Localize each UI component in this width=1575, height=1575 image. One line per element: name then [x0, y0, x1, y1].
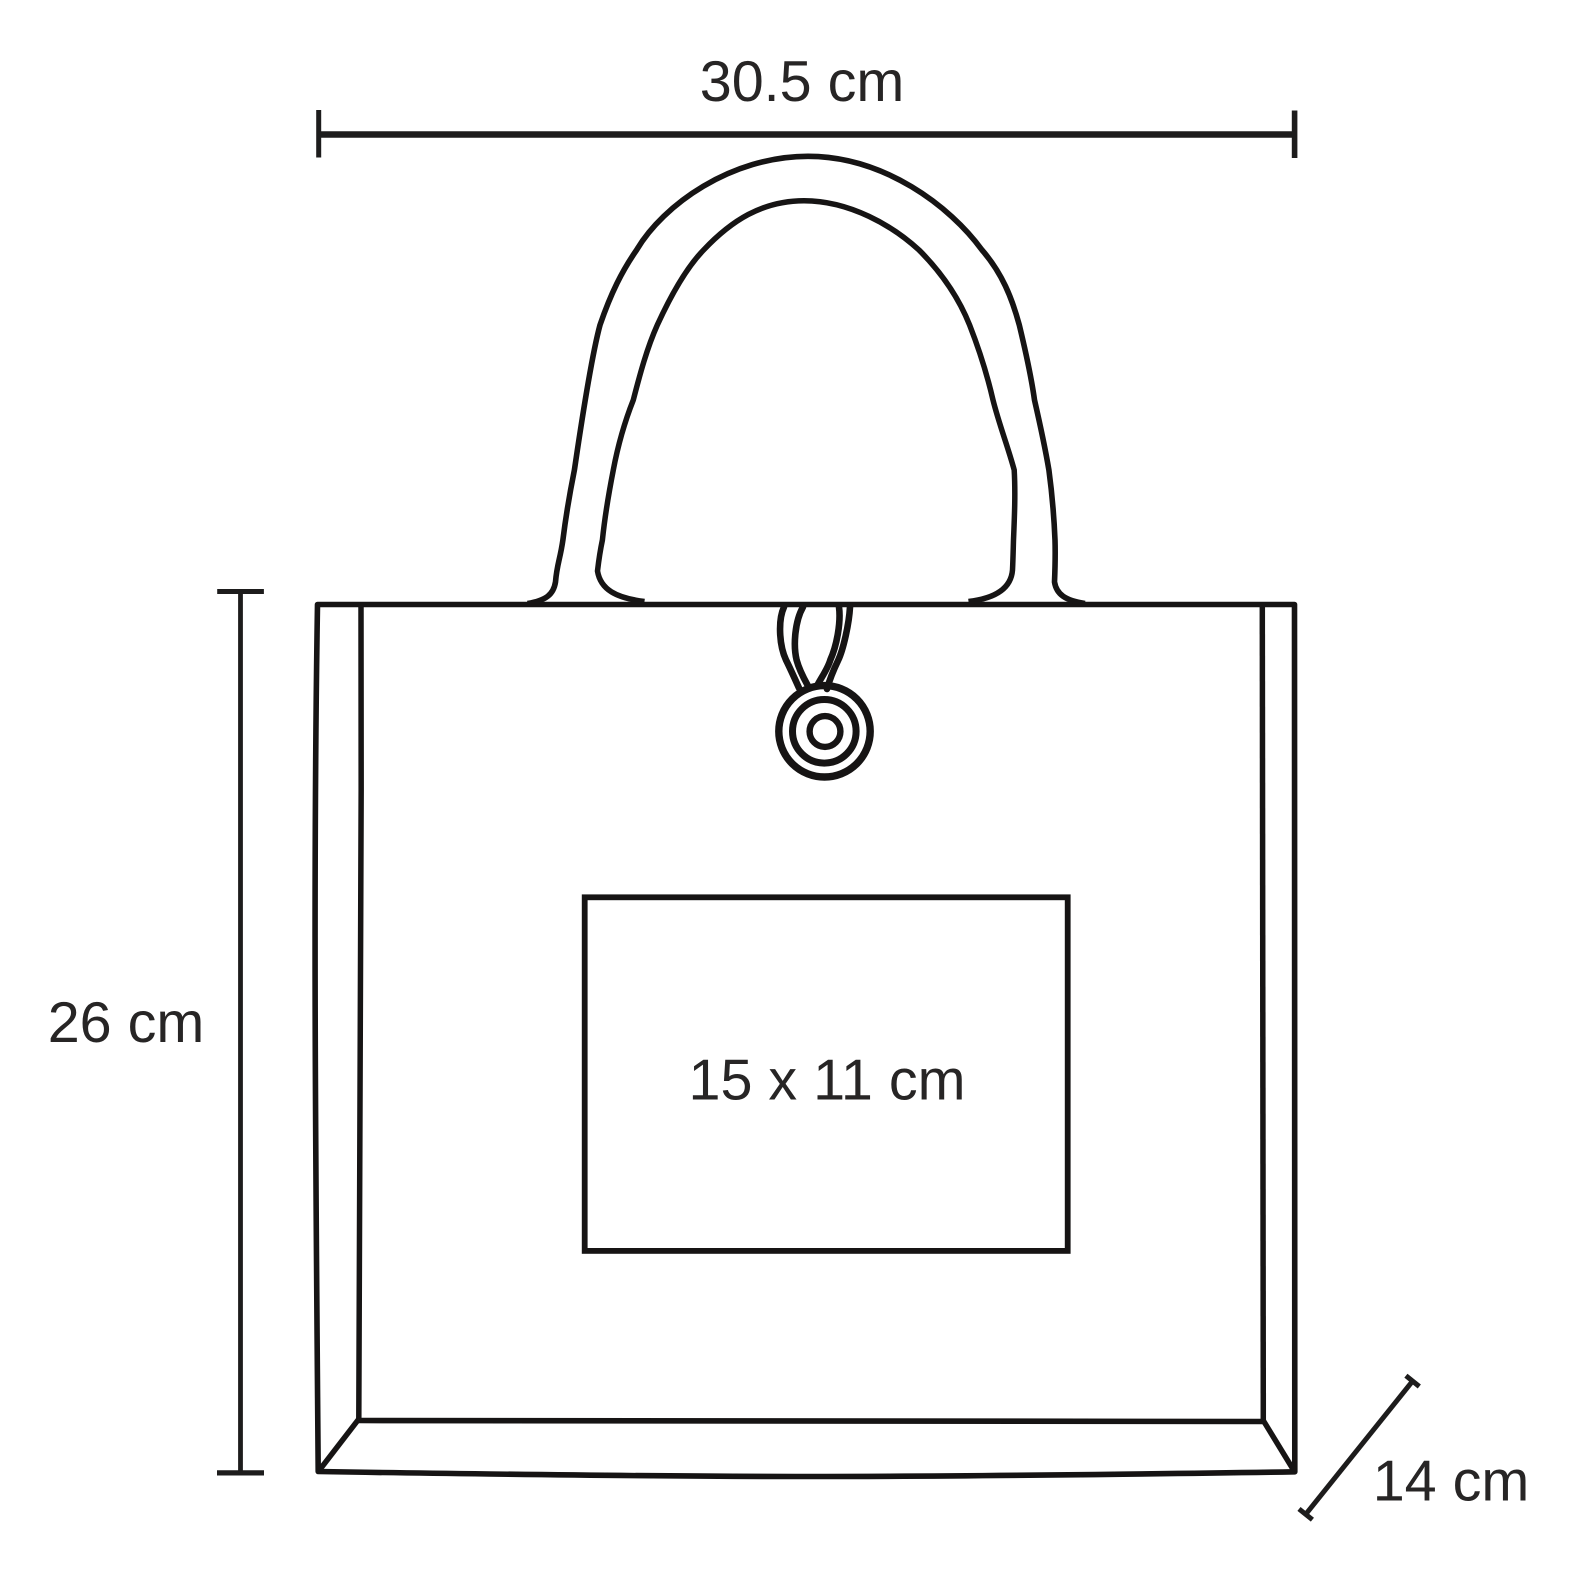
svg-text:14 cm: 14 cm — [1373, 1450, 1530, 1514]
svg-text:30.5 cm: 30.5 cm — [700, 50, 905, 114]
svg-text:26 cm: 26 cm — [48, 991, 205, 1055]
svg-text:15 x 11 cm: 15 x 11 cm — [689, 1049, 966, 1113]
